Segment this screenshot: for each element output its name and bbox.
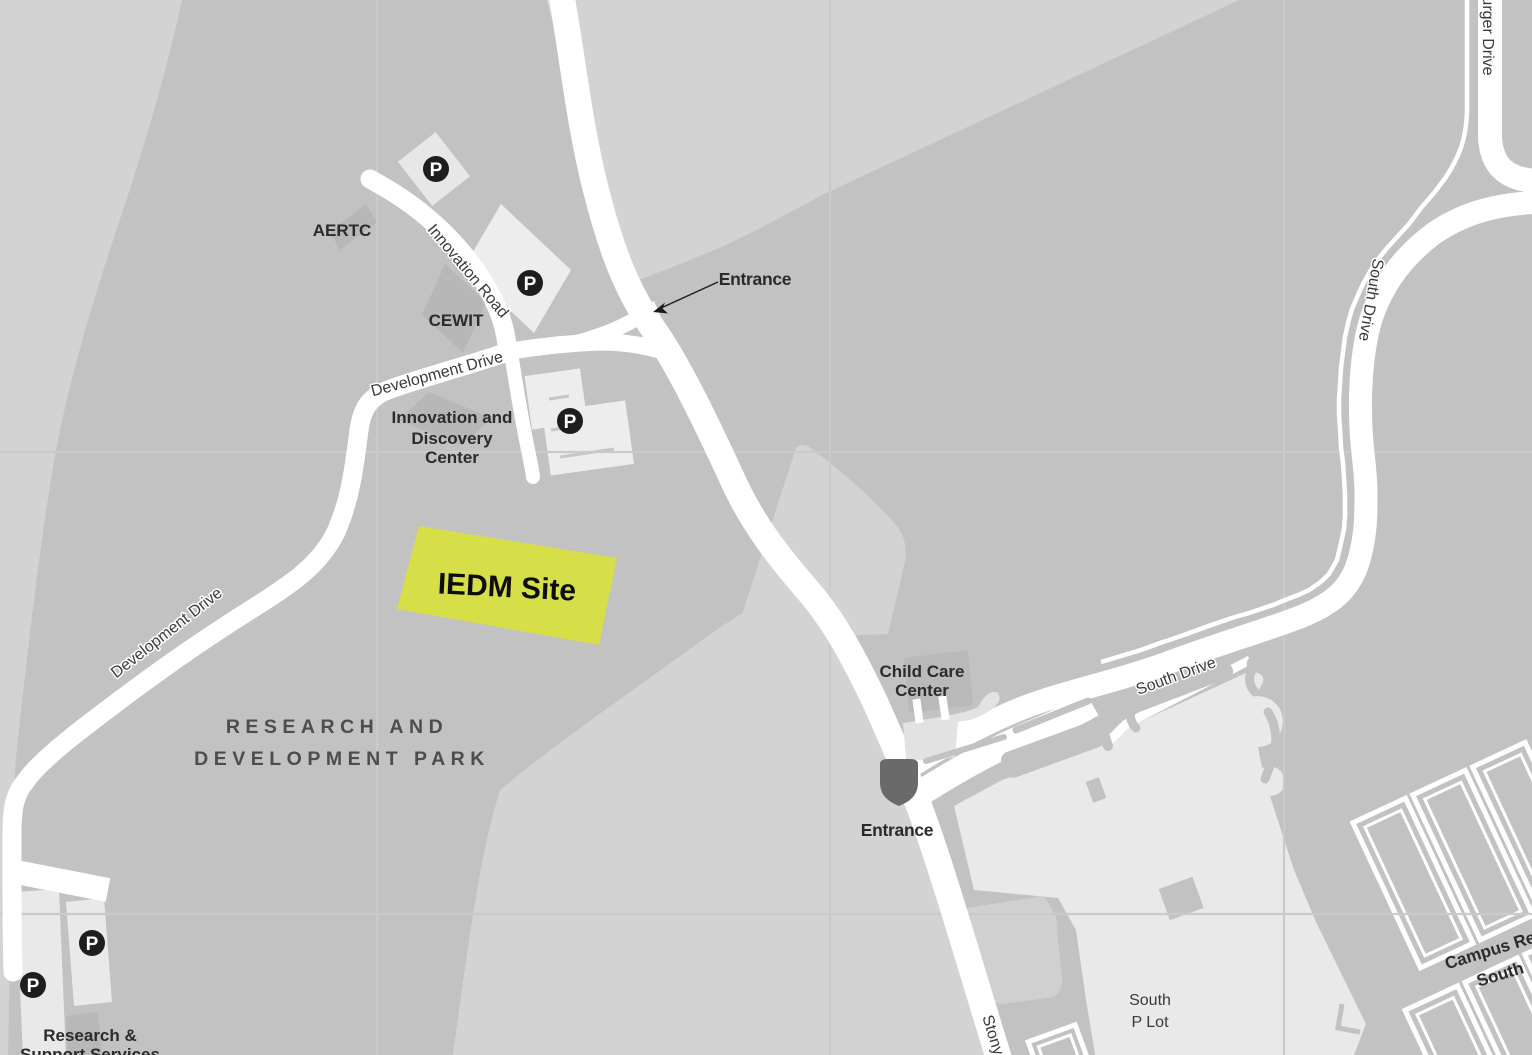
svg-text:Center: Center [895, 681, 949, 700]
svg-text:South: South [1129, 992, 1171, 1009]
svg-text:P: P [86, 934, 99, 955]
svg-text:CEWIT: CEWIT [429, 311, 484, 330]
svg-text:P: P [430, 160, 443, 181]
svg-text:DEVELOPMENT PARK: DEVELOPMENT PARK [194, 748, 490, 770]
svg-text:urger Drive: urger Drive [1479, 0, 1496, 76]
svg-text:Innovation and: Innovation and [392, 408, 513, 427]
svg-text:P: P [27, 976, 40, 997]
svg-text:Child Care: Child Care [879, 662, 964, 681]
svg-text:Discovery: Discovery [411, 429, 493, 448]
svg-text:RESEARCH AND: RESEARCH AND [226, 716, 448, 738]
svg-text:Entrance: Entrance [719, 269, 792, 289]
svg-text:P: P [564, 412, 577, 433]
svg-text:Entrance: Entrance [861, 820, 934, 840]
svg-text:P Lot: P Lot [1131, 1014, 1169, 1031]
svg-text:P: P [524, 274, 537, 295]
svg-text:Center: Center [425, 448, 479, 467]
svg-text:Research &: Research & [43, 1026, 137, 1045]
svg-text:Support Services: Support Services [20, 1045, 160, 1055]
svg-text:AERTC: AERTC [313, 221, 372, 240]
